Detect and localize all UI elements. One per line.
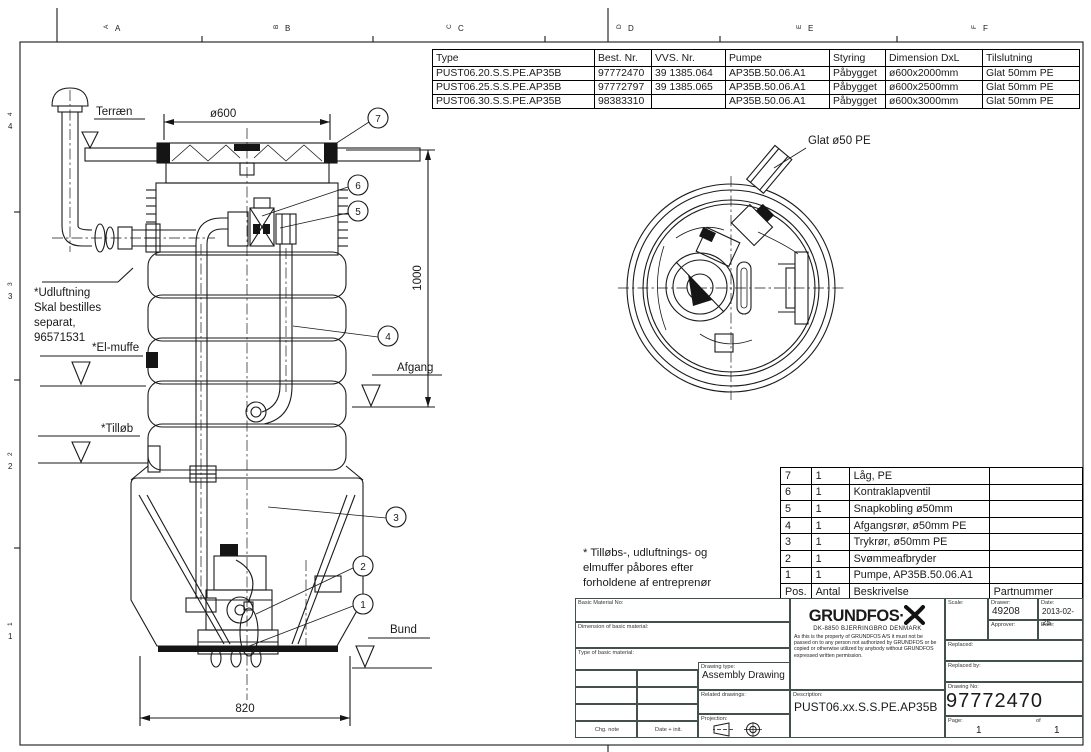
spec-cell: 39 1385.065 <box>652 81 726 95</box>
svg-text:F: F <box>983 24 988 33</box>
parts-row: 3 1 Trykrør, ø50mm PE <box>781 534 1083 551</box>
elevation-view: Terræn *Udluftning Skal bestilles separa… <box>34 88 442 726</box>
page-cell: Page: of 1 1 <box>945 716 1083 738</box>
svg-text:A: A <box>115 24 121 33</box>
spec-cell: AP35B.50.06.A1 <box>726 81 830 95</box>
field-label: of <box>1034 717 1041 724</box>
spec-cell: ø600x2000mm <box>886 67 983 81</box>
parts-pos: 3 <box>781 534 812 551</box>
projection-symbol-icon <box>713 722 773 737</box>
drawing-no-value: 97772470 <box>946 684 1043 712</box>
parts-partno <box>989 468 1082 485</box>
svg-text:3: 3 <box>7 282 14 286</box>
svg-text:1000: 1000 <box>412 265 424 291</box>
svg-text:Bund: Bund <box>390 624 417 636</box>
rev-cell <box>575 687 637 704</box>
replaced-cell: Replaced: <box>945 640 1083 661</box>
field-label: Type of basic material: <box>576 649 789 656</box>
spec-cell: AP35B.50.06.A1 <box>726 67 830 81</box>
svg-text:separat,: separat, <box>34 317 76 329</box>
spec-cell: PUST06.20.S.S.PE.AP35B <box>433 67 595 81</box>
svg-text:*Tilløb: *Tilløb <box>101 423 133 435</box>
rev-cell <box>637 704 698 721</box>
field-label: Related drawings: <box>699 691 789 698</box>
spec-header: Best. Nr. <box>595 50 652 67</box>
page-total-value: 1 <box>1054 725 1060 736</box>
spec-cell: AP35B.50.06.A1 <box>726 95 830 109</box>
field-label: Dimension of basic material: <box>576 623 789 630</box>
svg-text:D: D <box>628 24 634 33</box>
legal-text: As this is the property of GRUNDFOS A/S … <box>791 632 944 661</box>
parts-pos: 2 <box>781 550 812 567</box>
plan-coupling <box>666 253 734 321</box>
drawing-type-value: Assembly Drawing <box>699 670 789 681</box>
drawer-cell: Drawer: 49208 <box>988 598 1038 620</box>
parts-qty: 1 <box>811 501 849 518</box>
description-value: PUST06.xx.S.S.PE.AP35B <box>791 696 937 714</box>
callout-3: 3 <box>268 507 406 527</box>
svg-text:2: 2 <box>7 452 14 456</box>
svg-text:4: 4 <box>8 122 13 131</box>
svg-text:3: 3 <box>8 292 13 301</box>
callout-7: 7 <box>332 108 388 146</box>
parts-table: 7 1 Låg, PE 6 1 Kontraklapventil 5 1 Sna… <box>780 467 1083 601</box>
approver-cell: Approver: <box>988 620 1038 640</box>
parts-desc: Afgangsrør, ø50mm PE <box>849 517 989 534</box>
svg-text:5: 5 <box>355 207 361 218</box>
spec-header-row: Type Best. Nr. VVS. Nr. Pumpe Styring Di… <box>433 50 1080 67</box>
date-cell: Date: 2013-02-25 <box>1038 598 1083 620</box>
parts-partno <box>989 517 1082 534</box>
replaced-by-cell: Replaced by: <box>945 661 1083 682</box>
parts-pos: 1 <box>781 567 812 584</box>
parts-desc: Trykrør, ø50mm PE <box>849 534 989 551</box>
parts-row: 5 1 Snapkobling ø50mm <box>781 501 1083 518</box>
parts-qty: 1 <box>811 468 849 485</box>
rev-cell <box>575 704 637 721</box>
parts-row: 1 1 Pumpe, AP35B.50.06.A1 <box>781 567 1083 584</box>
spec-cell: 98383310 <box>595 95 652 109</box>
description-cell: Description: PUST06.xx.S.S.PE.AP35B <box>790 690 945 738</box>
svg-text:7: 7 <box>375 114 381 125</box>
svg-text:Terræn: Terræn <box>96 106 132 118</box>
drawing-type-cell: Drawing type: Assembly Drawing <box>698 662 790 690</box>
svg-text:2: 2 <box>360 562 366 573</box>
parts-desc: Kontraklapventil <box>849 484 989 501</box>
spec-cell: Påbygget <box>830 67 886 81</box>
plan-view: Glat ø50 PE <box>618 135 871 400</box>
basic-material-no-cell: Basic Material No: <box>575 598 790 622</box>
note-line: * Tilløbs-, udluftnings- og <box>583 546 711 561</box>
svg-text:1: 1 <box>7 622 14 626</box>
parts-pos: 7 <box>781 468 812 485</box>
svg-text:E: E <box>796 24 803 29</box>
spec-cell: Påbygget <box>830 95 886 109</box>
spec-cell: Glat 50mm PE <box>983 81 1080 95</box>
dim-width: 820 <box>140 656 350 726</box>
svg-text:6: 6 <box>355 181 361 192</box>
svg-text:D: D <box>616 24 623 29</box>
svg-text:2: 2 <box>8 462 13 471</box>
spec-cell: 97772797 <box>595 81 652 95</box>
field-label: Drawing type: <box>699 663 789 670</box>
site-note: * Tilløbs-, udluftnings- og elmuffer påb… <box>583 546 711 591</box>
parts-desc: Pumpe, AP35B.50.06.A1 <box>849 567 989 584</box>
spec-header: Dimension DxL <box>886 50 983 67</box>
title-block: Basic Material No: Dimension of basic ma… <box>575 598 1083 738</box>
parts-qty: 1 <box>811 517 849 534</box>
spec-header: Styring <box>830 50 886 67</box>
parts-pos: 4 <box>781 517 812 534</box>
field-label: Replaced by: <box>946 662 1082 669</box>
scale-cell: Scale: <box>945 598 988 640</box>
rev-cell <box>637 670 698 687</box>
spec-cell <box>652 95 726 109</box>
field-label: Date: <box>1039 599 1082 606</box>
spec-row: PUST06.20.S.S.PE.AP35B 97772470 39 1385.… <box>433 67 1080 81</box>
svg-text:96571531: 96571531 <box>34 332 85 344</box>
spec-cell: 39 1385.064 <box>652 67 726 81</box>
parts-partno <box>989 484 1082 501</box>
svg-text:Skal bestilles: Skal bestilles <box>34 302 101 314</box>
spec-header: VVS. Nr. <box>652 50 726 67</box>
field-label: Basic Material No: <box>576 599 789 606</box>
parts-partno <box>989 501 1082 518</box>
svg-text:820: 820 <box>235 703 254 715</box>
spec-cell: Glat 50mm PE <box>983 67 1080 81</box>
note-line: elmuffer påbores efter <box>583 561 711 576</box>
parts-partno <box>989 534 1082 551</box>
spec-cell: PUST06.30.S.S.PE.AP35B <box>433 95 595 109</box>
spec-row: PUST06.25.S.S.PE.AP35B 97772797 39 1385.… <box>433 81 1080 95</box>
spec-cell: Glat 50mm PE <box>983 95 1080 109</box>
svg-text:4: 4 <box>7 112 14 116</box>
note-line: forholdene af entreprenør <box>583 576 711 591</box>
approver-date-cell: Date: <box>1038 620 1083 640</box>
svg-text:ø600: ø600 <box>210 108 236 120</box>
spec-cell: Påbygget <box>830 81 886 95</box>
cable-socket <box>146 352 158 368</box>
spec-cell: ø600x3000mm <box>886 95 983 109</box>
svg-text:B: B <box>273 25 280 29</box>
logo-cell: GRUNDFOS· DK-8850 BJERRINGBRO DENMARK As… <box>790 598 945 690</box>
level-elmuffe: *El-muffe <box>40 342 146 386</box>
svg-text:4: 4 <box>385 332 391 343</box>
spec-header: Tilslutning <box>983 50 1080 67</box>
plan-elbow <box>696 204 774 267</box>
level-terraen: Terræn <box>82 106 145 148</box>
parts-row: 6 1 Kontraklapventil <box>781 484 1083 501</box>
date-init-cell: Date + init. <box>637 721 698 738</box>
parts-desc: Snapkobling ø50mm <box>849 501 989 518</box>
company-address: DK-8850 BJERRINGBRO DENMARK <box>791 626 944 632</box>
field-label: Scale: <box>946 599 987 606</box>
svg-text:1: 1 <box>8 632 13 641</box>
parts-pos: 5 <box>781 501 812 518</box>
parts-row: 7 1 Låg, PE <box>781 468 1083 485</box>
parts-desc: Låg, PE <box>849 468 989 485</box>
projection-cell: Projection: <box>698 714 790 738</box>
drawing-no-cell: Drawing No: 97772470 <box>945 682 1083 716</box>
svg-text:F: F <box>971 25 978 29</box>
drawing-sheet: A A B B C C D D E E F F 4 4 3 3 2 2 1 1 <box>0 0 1091 752</box>
svg-text:1: 1 <box>360 600 366 611</box>
parts-qty: 1 <box>811 550 849 567</box>
grundfos-logo: GRUNDFOS· <box>809 607 904 625</box>
spec-table: Type Best. Nr. VVS. Nr. Pumpe Styring Di… <box>432 49 1080 109</box>
spec-cell: 97772470 <box>595 67 652 81</box>
parts-row: 2 1 Svømmeafbryder <box>781 550 1083 567</box>
parts-pos: 6 <box>781 484 812 501</box>
label-udluftning: *Udluftning Skal bestilles separat, 9657… <box>34 268 133 344</box>
drawer-value: 49208 <box>989 606 1037 617</box>
field-label: Page: <box>946 717 963 724</box>
svg-text:*El-muffe: *El-muffe <box>92 342 139 354</box>
svg-text:C: C <box>446 24 453 29</box>
callout-1: 1 <box>244 594 373 648</box>
spec-row: PUST06.30.S.S.PE.AP35B 98383310 AP35B.50… <box>433 95 1080 109</box>
level-tilloeb: *Tilløb <box>38 423 148 463</box>
parts-partno <box>989 567 1082 584</box>
related-drawings-cell: Related drawings: <box>698 690 790 714</box>
spec-cell: ø600x2500mm <box>886 81 983 95</box>
dimension-basic-material-cell: Dimension of basic material: <box>575 622 790 648</box>
page-value: 1 <box>976 725 982 736</box>
level-bund: Bund <box>352 624 432 668</box>
spec-cell: PUST06.25.S.S.PE.AP35B <box>433 81 595 95</box>
internal-piping <box>190 198 296 598</box>
svg-text:C: C <box>458 24 464 33</box>
parts-partno <box>989 550 1082 567</box>
parts-desc: Svømmeafbryder <box>849 550 989 567</box>
svg-text:A: A <box>103 24 110 29</box>
parts-qty: 1 <box>811 567 849 584</box>
rev-cell <box>637 687 698 704</box>
grundfos-mark-icon <box>904 605 926 625</box>
svg-text:E: E <box>808 24 813 33</box>
svg-text:B: B <box>285 24 290 33</box>
field-label: Chg. note <box>576 722 636 733</box>
parts-qty: 1 <box>811 484 849 501</box>
spec-header: Type <box>433 50 595 67</box>
field-label: Replaced: <box>946 641 1082 648</box>
field-label: Projection: <box>699 715 789 722</box>
svg-text:Glat ø50 PE: Glat ø50 PE <box>808 135 871 147</box>
rev-cell <box>575 670 637 687</box>
svg-text:*Udluftning: *Udluftning <box>34 287 90 299</box>
chg-note-cell: Chg. note <box>575 721 637 738</box>
field-label: Approver: <box>989 621 1037 628</box>
parts-row: 4 1 Afgangsrør, ø50mm PE <box>781 517 1083 534</box>
spec-header: Pumpe <box>726 50 830 67</box>
field-label: Drawer: <box>989 599 1037 606</box>
field-label: Date + init. <box>638 722 697 733</box>
parts-qty: 1 <box>811 534 849 551</box>
svg-text:3: 3 <box>393 513 399 524</box>
field-label: Date: <box>1039 621 1082 628</box>
